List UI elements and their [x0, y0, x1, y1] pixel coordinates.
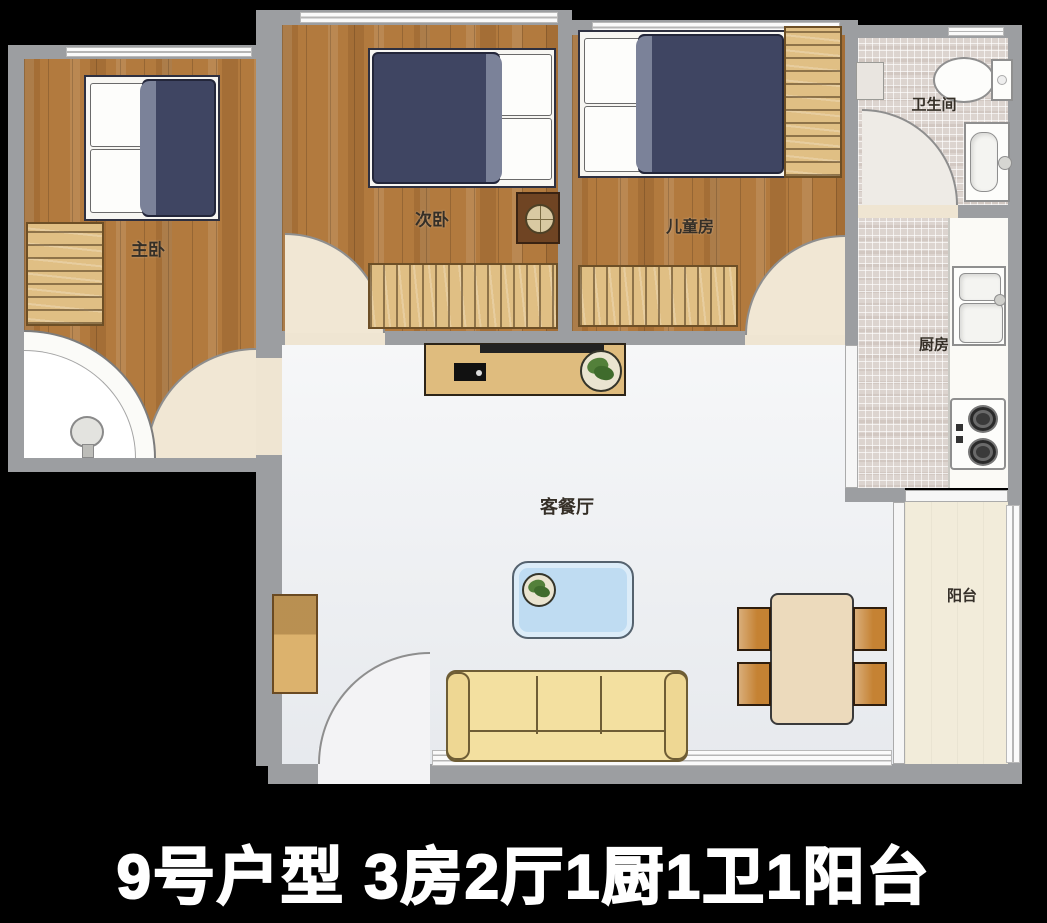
- caption: 9号户型 3房2厅1厨1卫1阳台: [0, 826, 1047, 916]
- dining-chair-icon: [853, 607, 887, 651]
- dining-table-icon: [770, 593, 854, 725]
- washbasin-icon: [964, 122, 1010, 202]
- coffee-table-icon: [512, 561, 634, 639]
- room-label-master-bedroom: 主卧: [131, 236, 165, 261]
- master-bed-icon: [84, 75, 220, 221]
- second-wardrobe-icon: [368, 263, 558, 329]
- stove-knob: [956, 436, 963, 443]
- children-wardrobe-icon: [784, 26, 842, 178]
- dining-chair-icon: [737, 662, 771, 706]
- pillow-icon: [496, 54, 552, 116]
- pillow-icon: [496, 118, 552, 180]
- potted-plant-icon: [522, 573, 556, 607]
- sofa-icon: [446, 670, 688, 762]
- kitchen-sink-icon: [952, 266, 1006, 346]
- children-bed-icon: [578, 30, 788, 178]
- balcony-glass-partition: [893, 502, 905, 764]
- window-master-top: [66, 47, 252, 57]
- window-second-bedroom-top: [300, 12, 558, 23]
- duvet-fold: [140, 81, 156, 215]
- faucet-icon: [994, 294, 1006, 306]
- burner-icon: [968, 405, 998, 433]
- children-closet-icon: [578, 265, 738, 327]
- duvet-icon: [142, 79, 216, 217]
- dining-chair-icon: [853, 662, 887, 706]
- dining-chair-icon: [737, 607, 771, 651]
- toilet-tank-icon: [991, 59, 1013, 101]
- floor-plan: 主卧 次卧 儿童房 卫生间 厨房 客餐厅 阳台 9号户型 3房2厅1厨1卫1阳台: [0, 0, 1047, 923]
- kitchen-glass-partition: [845, 345, 858, 488]
- wall-bathroom-bottom: [958, 205, 1008, 218]
- stove-icon: [950, 398, 1006, 470]
- sink-large-basin: [959, 303, 1003, 343]
- room-label-balcony: 阳台: [947, 585, 977, 606]
- master-wardrobe-icon: [26, 222, 104, 326]
- balcony-door-track: [905, 490, 1008, 502]
- pillow-icon: [584, 106, 642, 172]
- basin-bowl: [970, 132, 998, 192]
- shoe-cabinet-icon: [272, 594, 318, 694]
- tv-cabinet-icon: [424, 343, 626, 396]
- tv-icon: [480, 344, 604, 353]
- duvet-icon: [372, 52, 500, 184]
- pillow-icon: [584, 38, 642, 104]
- window-balcony-right: [1006, 505, 1020, 763]
- stove-knob: [956, 424, 963, 431]
- wall-kitchen-bottom: [845, 488, 905, 502]
- remote-icon: [454, 363, 486, 381]
- room-label-kitchen: 厨房: [919, 334, 949, 355]
- window-bathroom-top: [948, 27, 1004, 36]
- room-label-children-room: 儿童房: [666, 213, 714, 237]
- bath-shelf-icon: [856, 62, 884, 100]
- sofa-seat-divider: [600, 676, 602, 734]
- sofa-seat-divider: [536, 676, 538, 734]
- decor-plate-icon: [525, 204, 555, 234]
- balcony-floor: [905, 502, 1008, 766]
- potted-plant-icon: [580, 350, 622, 392]
- room-label-living-dining: 客餐厅: [540, 493, 594, 519]
- second-bed-icon: [368, 48, 556, 188]
- wall-between-bedrooms: [558, 20, 572, 345]
- burner-icon: [968, 438, 998, 466]
- duvet-fold: [636, 36, 652, 172]
- room-label-bathroom: 卫生间: [911, 94, 956, 115]
- wall-master-bottom: [8, 458, 270, 472]
- room-label-second-bedroom: 次卧: [415, 206, 449, 231]
- duvet-icon: [638, 34, 784, 174]
- sofa-armrest: [446, 672, 470, 760]
- bathroom-door-opening: [858, 205, 958, 218]
- sofa-seam: [470, 730, 664, 732]
- second-bedroom-door-opening: [285, 331, 385, 345]
- nightstand-icon: [516, 192, 560, 244]
- wall-master-right-upper: [256, 10, 282, 358]
- sofa-armrest: [664, 672, 688, 760]
- duvet-fold: [486, 54, 502, 182]
- shower-valve: [82, 444, 94, 458]
- master-door-opening: [256, 358, 282, 455]
- faucet-icon: [998, 156, 1012, 170]
- wall-master-left: [8, 45, 24, 472]
